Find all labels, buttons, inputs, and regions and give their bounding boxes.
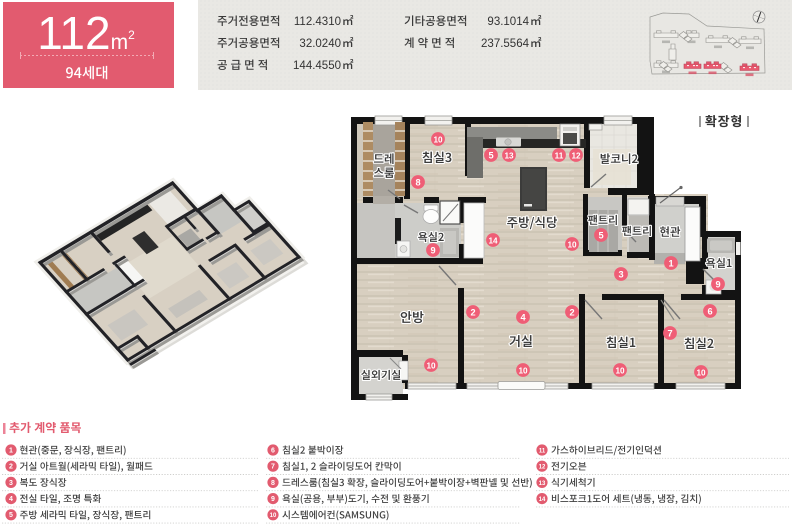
svg-text:10: 10	[615, 366, 625, 375]
svg-text:13: 13	[504, 151, 514, 160]
svg-text:14: 14	[539, 497, 546, 503]
svg-text:8: 8	[415, 177, 420, 187]
svg-text:5: 5	[9, 512, 13, 519]
svg-text:1: 1	[9, 447, 13, 454]
svg-text:6: 6	[271, 447, 275, 454]
svg-text:11: 11	[555, 151, 564, 160]
svg-text:10: 10	[518, 366, 528, 375]
svg-text:1: 1	[668, 258, 673, 268]
svg-text:7: 7	[271, 464, 275, 471]
svg-text:10: 10	[567, 240, 577, 249]
svg-text:9: 9	[430, 245, 435, 255]
svg-text:10: 10	[426, 361, 436, 370]
svg-text:144.4550: 144.4550	[293, 60, 341, 72]
svg-text:93.1014: 93.1014	[487, 16, 529, 28]
svg-text:13: 13	[539, 481, 546, 487]
svg-text:2: 2	[470, 307, 475, 317]
svg-text:2: 2	[569, 307, 574, 317]
svg-text:112.4310: 112.4310	[294, 16, 341, 28]
svg-text:11: 11	[539, 448, 546, 454]
svg-text:9: 9	[715, 279, 720, 289]
svg-text:3: 3	[9, 480, 13, 487]
svg-text:9: 9	[271, 496, 275, 503]
svg-text:4: 4	[520, 312, 526, 322]
svg-text:3: 3	[618, 269, 623, 279]
svg-text:12: 12	[571, 151, 581, 160]
svg-text:5: 5	[598, 230, 603, 240]
svg-text:237.5564: 237.5564	[481, 38, 530, 50]
svg-text:14: 14	[488, 236, 498, 245]
svg-text:7: 7	[667, 328, 672, 338]
svg-text:10: 10	[433, 135, 443, 144]
svg-text:12: 12	[539, 465, 546, 471]
svg-text:10: 10	[270, 513, 277, 519]
svg-text:2: 2	[9, 464, 13, 471]
svg-text:8: 8	[271, 480, 275, 487]
svg-text:10: 10	[696, 368, 706, 377]
svg-text:4: 4	[9, 496, 13, 503]
svg-text:32.0240: 32.0240	[299, 38, 341, 50]
svg-text:6: 6	[707, 306, 712, 316]
svg-text:5: 5	[488, 150, 493, 160]
